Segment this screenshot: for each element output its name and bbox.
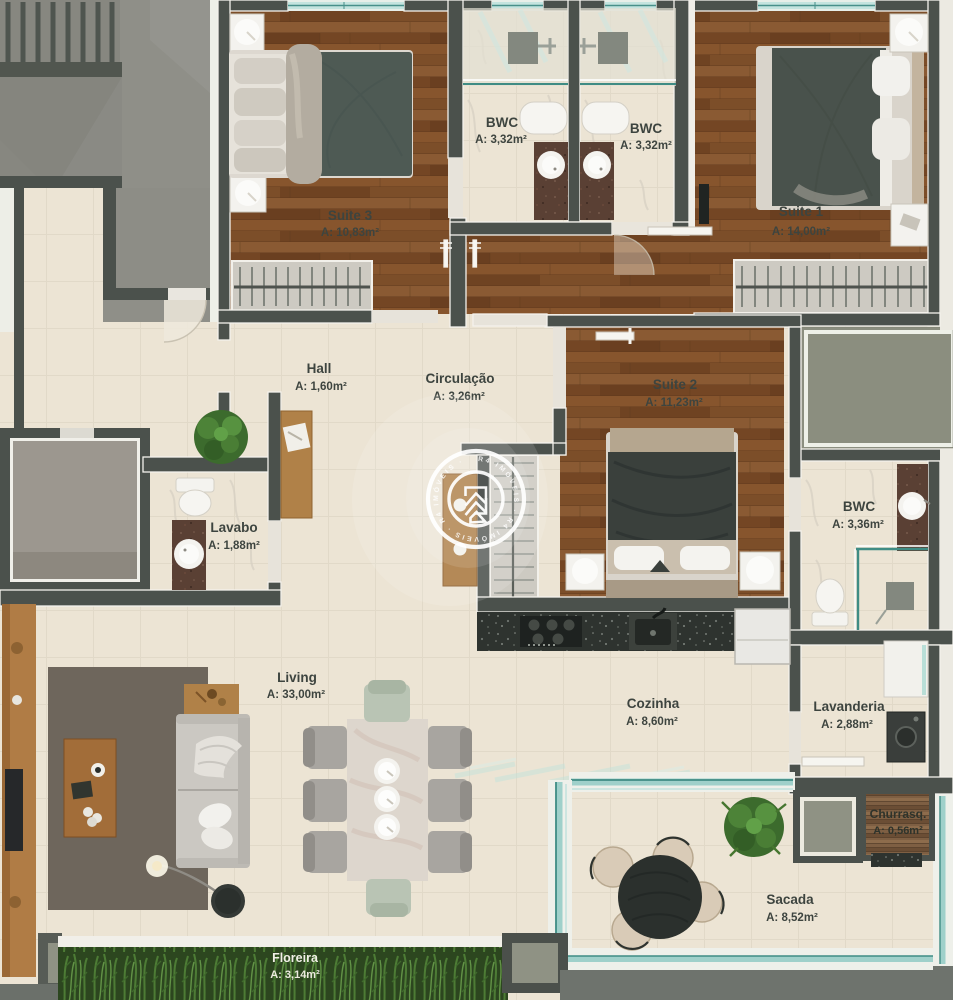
svg-text:A: 8,52m²: A: 8,52m² xyxy=(766,912,818,924)
svg-text:A: 3,32m²: A: 3,32m² xyxy=(620,140,672,152)
svg-text:A: 1,88m²: A: 1,88m² xyxy=(208,540,260,552)
svg-text:A: 0,56m²: A: 0,56m² xyxy=(873,825,923,837)
svg-text:A: 14,00m²: A: 14,00m² xyxy=(772,226,830,238)
svg-text:A: 11,23m²: A: 11,23m² xyxy=(645,397,703,409)
svg-text:Suite 2: Suite 2 xyxy=(653,377,697,392)
svg-text:Suite 3: Suite 3 xyxy=(328,208,373,223)
svg-text:Suite 1: Suite 1 xyxy=(779,204,824,219)
svg-text:Sacada: Sacada xyxy=(766,892,814,907)
svg-text:A: 8,60m²: A: 8,60m² xyxy=(626,716,678,728)
svg-text:A: 3,14m²: A: 3,14m² xyxy=(270,969,320,981)
svg-text:BWC: BWC xyxy=(630,121,662,136)
svg-text:Floreira: Floreira xyxy=(272,951,319,965)
svg-text:BWC: BWC xyxy=(486,115,518,130)
svg-text:A: 3,36m²: A: 3,36m² xyxy=(832,519,884,531)
svg-text:A: 33,00m²: A: 33,00m² xyxy=(267,689,325,701)
svg-text:Circulação: Circulação xyxy=(425,371,494,386)
svg-text:Churrasq.: Churrasq. xyxy=(870,807,927,821)
svg-text:A: 1,60m²: A: 1,60m² xyxy=(295,381,347,393)
svg-text:Cozinha: Cozinha xyxy=(627,696,680,711)
svg-text:Lavanderia: Lavanderia xyxy=(813,699,885,714)
svg-text:BWC: BWC xyxy=(843,499,875,514)
svg-text:A: 10,83m²: A: 10,83m² xyxy=(321,227,379,239)
svg-text:Lavabo: Lavabo xyxy=(210,520,257,535)
svg-text:Living: Living xyxy=(277,670,317,685)
svg-text:A: 3,32m²: A: 3,32m² xyxy=(475,134,527,146)
svg-text:Hall: Hall xyxy=(307,361,332,376)
svg-text:A: 2,88m²: A: 2,88m² xyxy=(821,719,873,731)
